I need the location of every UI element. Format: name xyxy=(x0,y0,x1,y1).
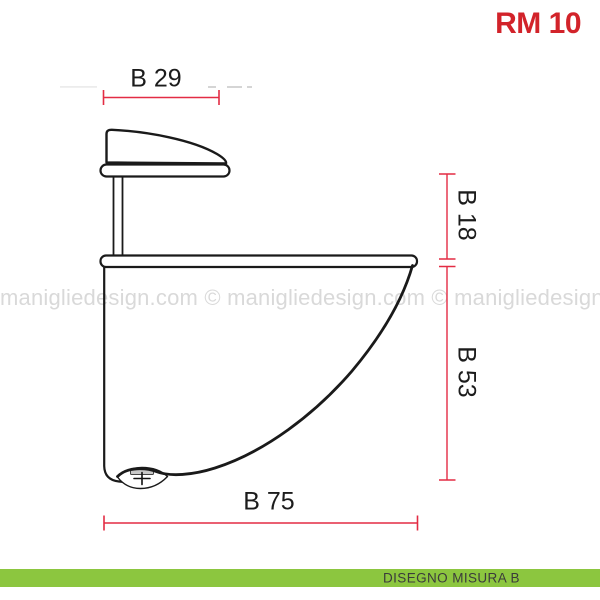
shelf-bar xyxy=(101,256,418,268)
fin-left-edge xyxy=(104,267,126,482)
clamp-bar xyxy=(101,165,230,177)
footer-label: DISEGNO MISURA B xyxy=(383,571,520,586)
page: manigliedesign.com © manigliedesign.com … xyxy=(0,0,600,600)
clamp-top-wedge xyxy=(107,130,227,164)
dimension-label-b29: B 29 xyxy=(130,65,181,94)
dimension-label-b75: B 75 xyxy=(243,488,294,517)
shelf-bracket-drawing xyxy=(0,0,600,600)
dimension-label-b53: B 53 xyxy=(452,346,481,397)
dim-line-b75 xyxy=(104,516,418,531)
footer-bar: DISEGNO MISURA B xyxy=(0,569,600,587)
fin-curve xyxy=(118,266,413,477)
dimension-label-b18: B 18 xyxy=(452,189,481,240)
